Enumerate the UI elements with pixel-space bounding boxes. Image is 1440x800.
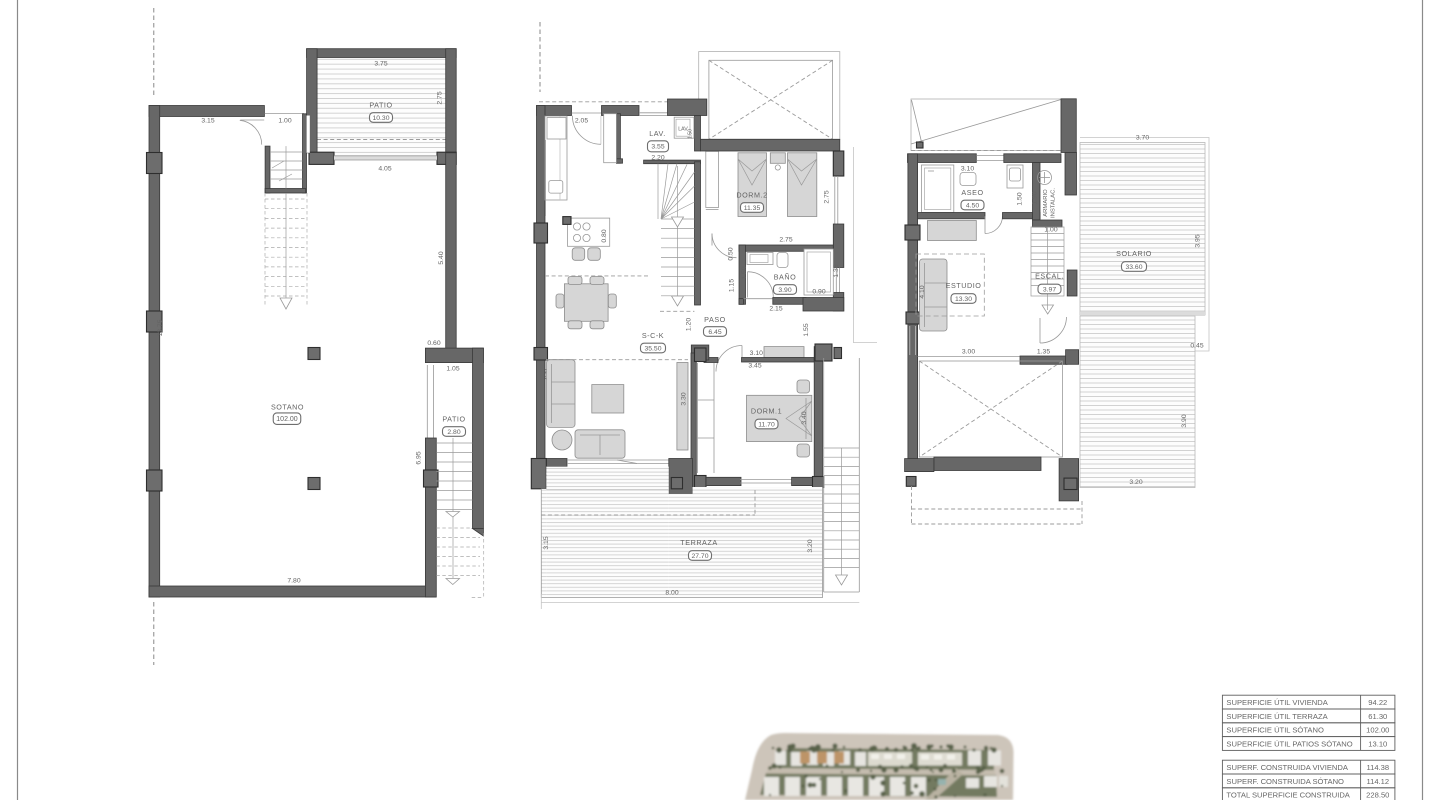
svg-text:2.05: 2.05 bbox=[575, 118, 588, 125]
svg-text:2.15: 2.15 bbox=[769, 306, 782, 313]
svg-text:1.35: 1.35 bbox=[1037, 349, 1050, 356]
svg-text:35.50: 35.50 bbox=[644, 345, 661, 352]
svg-text:4.10: 4.10 bbox=[919, 285, 926, 298]
svg-text:SUPERFICIE ÚTIL VIVIENDA: SUPERFICIE ÚTIL VIVIENDA bbox=[1226, 698, 1328, 707]
svg-text:1.55: 1.55 bbox=[803, 323, 810, 336]
svg-text:8.00: 8.00 bbox=[665, 590, 678, 597]
svg-text:61.30: 61.30 bbox=[1368, 712, 1387, 721]
svg-text:SUPERFICIE ÚTIL TERRAZA: SUPERFICIE ÚTIL TERRAZA bbox=[1226, 712, 1328, 721]
svg-text:ARMARIO: ARMARIO bbox=[1043, 189, 1049, 217]
svg-text:3.15: 3.15 bbox=[201, 118, 214, 125]
svg-text:PASO: PASO bbox=[704, 315, 726, 324]
svg-text:3.10: 3.10 bbox=[750, 350, 763, 357]
svg-text:13.75: 13.75 bbox=[157, 319, 164, 336]
svg-text:3.20: 3.20 bbox=[807, 539, 814, 552]
svg-text:PATIO: PATIO bbox=[442, 415, 465, 424]
svg-text:ESTUDIO: ESTUDIO bbox=[946, 281, 982, 290]
svg-text:3.00: 3.00 bbox=[962, 349, 975, 356]
svg-text:10.30: 10.30 bbox=[372, 115, 389, 122]
svg-text:PATIO: PATIO bbox=[369, 101, 392, 110]
svg-text:3.20: 3.20 bbox=[1129, 479, 1142, 486]
svg-text:3.90: 3.90 bbox=[778, 287, 791, 294]
svg-text:27.70: 27.70 bbox=[691, 553, 708, 560]
svg-text:3.10: 3.10 bbox=[961, 166, 974, 173]
svg-text:0.80: 0.80 bbox=[601, 229, 608, 242]
svg-text:S-C-K: S-C-K bbox=[642, 331, 664, 340]
svg-text:3.55: 3.55 bbox=[651, 144, 664, 151]
svg-text:2.75: 2.75 bbox=[779, 237, 792, 244]
svg-text:228.50: 228.50 bbox=[1366, 791, 1389, 800]
svg-text:1.90: 1.90 bbox=[1032, 191, 1039, 204]
svg-text:3.30: 3.30 bbox=[681, 392, 688, 405]
svg-text:SUPERFICIE ÚTIL SÓTANO: SUPERFICIE ÚTIL SÓTANO bbox=[1226, 726, 1324, 735]
svg-text:1.50: 1.50 bbox=[688, 129, 694, 139]
svg-text:102.00: 102.00 bbox=[1366, 726, 1389, 735]
svg-text:1.00: 1.00 bbox=[278, 118, 291, 125]
svg-text:3.15: 3.15 bbox=[543, 536, 550, 549]
svg-text:SUPERF. CONSTRUIDA VIVIENDA: SUPERF. CONSTRUIDA VIVIENDA bbox=[1226, 763, 1348, 772]
svg-text:3.97: 3.97 bbox=[1043, 286, 1056, 293]
svg-text:ESCAL.: ESCAL. bbox=[1035, 272, 1064, 281]
svg-text:13.10: 13.10 bbox=[1368, 739, 1387, 748]
svg-text:3.70: 3.70 bbox=[1136, 135, 1149, 142]
svg-text:0.90: 0.90 bbox=[812, 289, 825, 296]
svg-text:4.50: 4.50 bbox=[966, 202, 979, 209]
svg-text:ASEO: ASEO bbox=[961, 188, 983, 197]
svg-text:SUPERF. CONSTRUIDA SÓTANO: SUPERF. CONSTRUIDA SÓTANO bbox=[1226, 777, 1344, 786]
svg-text:13.30: 13.30 bbox=[955, 296, 972, 303]
svg-text:TERRAZA: TERRAZA bbox=[680, 538, 717, 547]
svg-text:4.05: 4.05 bbox=[378, 166, 391, 173]
svg-text:BAÑO: BAÑO bbox=[774, 273, 797, 282]
svg-text:INSTALAC.: INSTALAC. bbox=[1051, 188, 1057, 218]
svg-text:102.00: 102.00 bbox=[276, 416, 298, 423]
svg-text:0.50: 0.50 bbox=[728, 247, 735, 260]
svg-text:DORM.2: DORM.2 bbox=[736, 191, 767, 200]
svg-text:3.40: 3.40 bbox=[801, 411, 808, 424]
svg-text:SOLARIO: SOLARIO bbox=[1116, 249, 1152, 258]
svg-text:LAV.: LAV. bbox=[649, 129, 666, 138]
svg-text:1.15: 1.15 bbox=[729, 279, 736, 292]
svg-text:6.45: 6.45 bbox=[708, 329, 721, 336]
svg-text:2.80: 2.80 bbox=[447, 429, 460, 436]
svg-text:2.75: 2.75 bbox=[824, 190, 831, 203]
svg-text:TOTAL SUPERFICIE CONSTRUIDA: TOTAL SUPERFICIE CONSTRUIDA bbox=[1226, 791, 1350, 800]
svg-text:3.45: 3.45 bbox=[748, 363, 761, 370]
svg-text:114.38: 114.38 bbox=[1366, 763, 1389, 772]
svg-text:DORM.1: DORM.1 bbox=[751, 407, 782, 416]
svg-text:1.35: 1.35 bbox=[833, 264, 840, 277]
svg-text:1.50: 1.50 bbox=[1017, 192, 1024, 205]
svg-text:0.45: 0.45 bbox=[1190, 343, 1203, 350]
svg-text:3.95: 3.95 bbox=[1195, 234, 1202, 247]
svg-text:114.12: 114.12 bbox=[1366, 777, 1389, 786]
svg-text:11.35: 11.35 bbox=[744, 205, 761, 212]
svg-text:3.75: 3.75 bbox=[374, 61, 387, 68]
svg-text:1.50: 1.50 bbox=[741, 266, 748, 279]
svg-text:33.60: 33.60 bbox=[1125, 264, 1142, 271]
svg-text:1.00: 1.00 bbox=[1044, 227, 1057, 234]
svg-text:5.40: 5.40 bbox=[438, 251, 445, 264]
svg-text:0.60: 0.60 bbox=[427, 340, 440, 347]
svg-text:7.80: 7.80 bbox=[287, 578, 300, 585]
svg-text:1.05: 1.05 bbox=[446, 366, 459, 373]
svg-text:6.95: 6.95 bbox=[416, 451, 423, 464]
svg-text:SUPERFICIE ÚTIL PATIOS SÓTANO: SUPERFICIE ÚTIL PATIOS SÓTANO bbox=[1226, 739, 1352, 748]
svg-text:11.70: 11.70 bbox=[758, 421, 775, 428]
svg-text:1.20: 1.20 bbox=[686, 318, 693, 331]
svg-text:3.90: 3.90 bbox=[1181, 414, 1188, 427]
svg-text:94.22: 94.22 bbox=[1368, 698, 1387, 707]
svg-text:SOTANO: SOTANO bbox=[271, 402, 304, 411]
svg-text:2.75: 2.75 bbox=[437, 91, 444, 104]
